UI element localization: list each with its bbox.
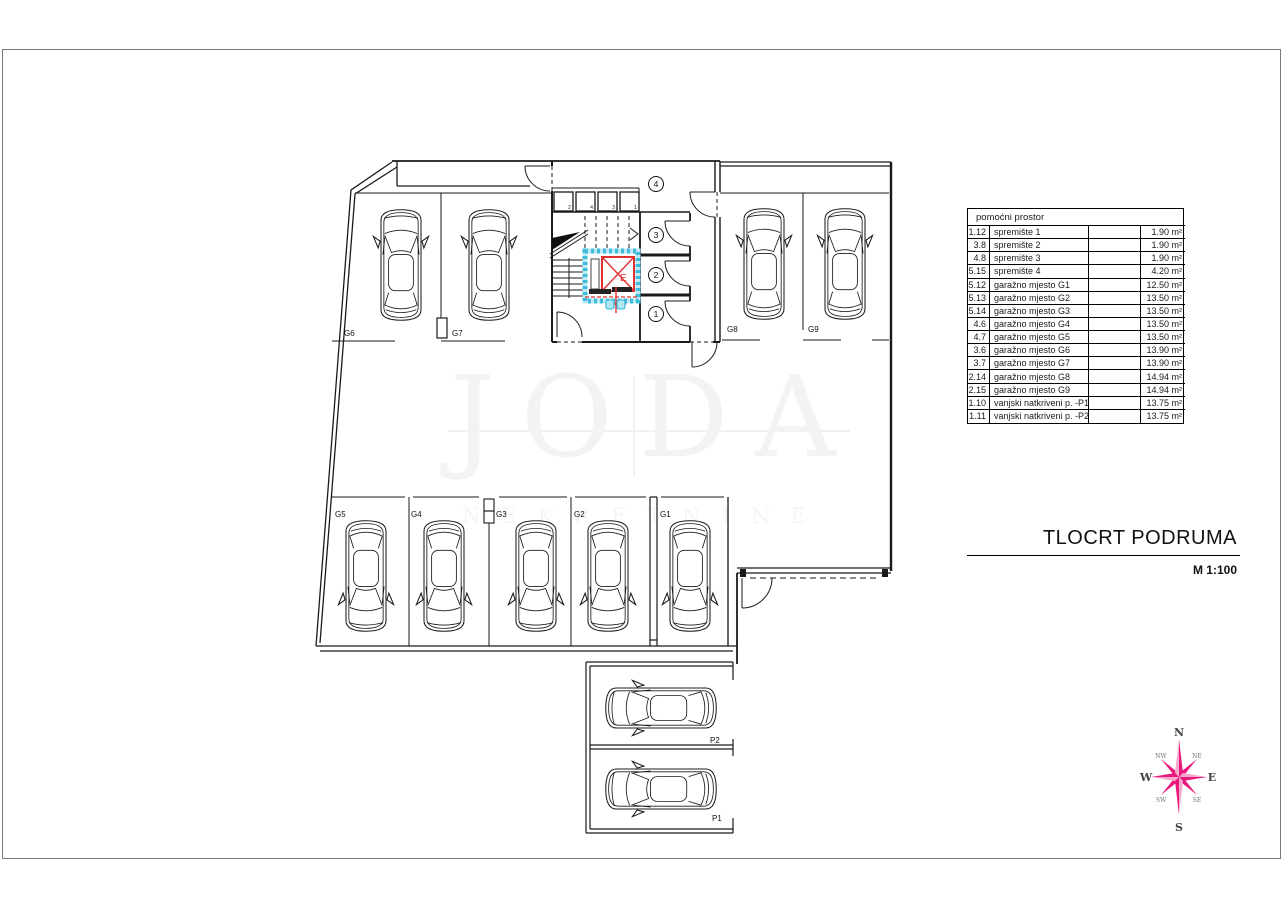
parking-labels: G6 G7 G8 G9 G5 G4 G3 G2 G1 P2 P1 xyxy=(335,325,819,823)
cell-area: 13.50 m² xyxy=(1141,305,1185,318)
room-numbers: 4 3 2 1 xyxy=(649,177,664,322)
parking-label-g6: G6 xyxy=(344,329,355,338)
cell-spacer xyxy=(1089,279,1141,292)
cell-name: garažno mjesto G9 xyxy=(990,384,1089,397)
compass-nw-label: NW xyxy=(1155,753,1167,760)
car-g8 xyxy=(736,209,791,319)
cell-area: 12.50 m² xyxy=(1141,279,1185,292)
car-g7 xyxy=(461,210,516,320)
cell-spacer xyxy=(1089,331,1141,344)
elevator-counterweight xyxy=(591,259,599,289)
car-p2 xyxy=(606,680,716,735)
room2-door xyxy=(665,261,690,286)
storage-numbers: 2 4 3 1 xyxy=(568,205,637,211)
cell-spacer xyxy=(1089,370,1141,383)
parking-label-g5: G5 xyxy=(335,510,346,519)
cell-area: 4.20 m² xyxy=(1141,265,1185,278)
cell-area: 1.90 m² xyxy=(1141,226,1185,239)
compass-w-label: W xyxy=(1139,771,1153,784)
cell-name: garažno mjesto G4 xyxy=(990,318,1089,331)
cell-name: spremište 3 xyxy=(990,252,1089,265)
cell-spacer xyxy=(1089,305,1141,318)
cell-spacer xyxy=(1089,318,1141,331)
cell-id: 3.7 xyxy=(968,357,990,370)
parking-label-g9: G9 xyxy=(808,325,819,334)
storage-boxes xyxy=(554,192,639,211)
parking-label-p1: P1 xyxy=(712,814,722,823)
room-number: 1 xyxy=(654,309,659,319)
cell-spacer xyxy=(1089,384,1141,397)
room-number: 4 xyxy=(654,179,659,189)
cell-spacer xyxy=(1089,226,1141,239)
core-left-door xyxy=(525,166,550,191)
car-g9 xyxy=(817,209,872,319)
core-bottom-left-door xyxy=(557,312,582,337)
table-header: pomoćni prostor xyxy=(968,209,1185,226)
compass-se-label: SE xyxy=(1193,797,1202,804)
cell-spacer xyxy=(1089,265,1141,278)
cell-spacer xyxy=(1089,252,1141,265)
cell-name: garažno mjesto G5 xyxy=(990,331,1089,344)
cell-name: spremište 4 xyxy=(990,265,1089,278)
section-cut-marker xyxy=(552,232,580,250)
compass-sw-label: SW xyxy=(1156,797,1167,804)
cell-area: 13.75 m² xyxy=(1141,397,1185,410)
cell-id: 5.15 xyxy=(968,265,990,278)
parking-label-g7: G7 xyxy=(452,329,463,338)
elevator-icon: E xyxy=(583,249,640,313)
compass-n-label: N xyxy=(1174,726,1184,739)
cell-spacer xyxy=(1089,292,1141,305)
cell-area: 13.90 m² xyxy=(1141,344,1185,357)
cell-area: 13.75 m² xyxy=(1141,410,1185,423)
cell-spacer xyxy=(1089,239,1141,252)
cell-area: 1.90 m² xyxy=(1141,252,1185,265)
cell-spacer xyxy=(1089,357,1141,370)
parking-label-g3: G3 xyxy=(496,510,507,519)
cell-id: 4.6 xyxy=(968,318,990,331)
cell-name: vanjski natkriveni p. -P1 xyxy=(990,397,1089,410)
entrance-door-arc xyxy=(742,578,772,608)
cell-id: 1.11 xyxy=(968,410,990,423)
car-g5 xyxy=(338,521,393,631)
cell-name: garažno mjesto G3 xyxy=(990,305,1089,318)
parking-label-g1: G1 xyxy=(660,510,671,519)
compass-e-label: E xyxy=(1208,771,1216,784)
car-g6 xyxy=(373,210,428,320)
cell-id: 2.14 xyxy=(968,370,990,383)
cell-area: 13.50 m² xyxy=(1141,318,1185,331)
cell-id: 1.12 xyxy=(968,226,990,239)
parking-label-g8: G8 xyxy=(727,325,738,334)
compass-rose-icon: N S W E NW NE SW SE xyxy=(1139,726,1216,834)
cell-id: 5.14 xyxy=(968,305,990,318)
cell-name: spremište 1 xyxy=(990,226,1089,239)
storage-number: 3 xyxy=(612,205,615,211)
cell-spacer xyxy=(1089,410,1141,423)
cell-name: garažno mjesto G2 xyxy=(990,292,1089,305)
cell-area: 14.94 m² xyxy=(1141,370,1185,383)
room1-door xyxy=(665,301,690,326)
corridor-top-door xyxy=(690,192,715,217)
car-g2 xyxy=(580,521,635,631)
cell-area: 13.90 m² xyxy=(1141,357,1185,370)
car-g4 xyxy=(416,521,471,631)
cell-id: 3.6 xyxy=(968,344,990,357)
parking-label-p2: P2 xyxy=(710,736,720,745)
cell-area: 1.90 m² xyxy=(1141,239,1185,252)
core-bottom-right-door xyxy=(692,342,717,367)
storage-number: 2 xyxy=(568,205,571,211)
elevator-label: E xyxy=(620,273,627,284)
cell-id: 5.12 xyxy=(968,279,990,292)
room-number: 3 xyxy=(654,230,659,240)
cell-name: garažno mjesto G7 xyxy=(990,357,1089,370)
cell-name: spremište 2 xyxy=(990,239,1089,252)
cell-name: garažno mjesto G1 xyxy=(990,279,1089,292)
cell-spacer xyxy=(1089,344,1141,357)
floor-plan-svg: 2 4 3 1 xyxy=(0,0,1287,905)
cell-name: garažno mjesto G6 xyxy=(990,344,1089,357)
scale-label: M 1:100 xyxy=(1193,563,1237,577)
cell-area: 13.50 m² xyxy=(1141,331,1185,344)
room-schedule-table: pomoćni prostor 1.12 spremište 1 1.90 m²… xyxy=(967,208,1184,424)
storage-number: 1 xyxy=(634,205,637,211)
car-g1 xyxy=(662,521,717,631)
car-p1 xyxy=(606,761,716,816)
cell-id: 1.10 xyxy=(968,397,990,410)
entrance-opening xyxy=(740,569,888,608)
parking-label-g4: G4 xyxy=(411,510,422,519)
cell-id: 5.13 xyxy=(968,292,990,305)
room3-door xyxy=(665,221,690,246)
compass-s-label: S xyxy=(1175,821,1183,834)
cell-id: 4.8 xyxy=(968,252,990,265)
title-underline xyxy=(967,555,1240,556)
cell-name: garažno mjesto G8 xyxy=(990,370,1089,383)
cell-area: 14.94 m² xyxy=(1141,384,1185,397)
cell-name: vanjski natkriveni p. -P2 xyxy=(990,410,1089,423)
room-number: 2 xyxy=(654,270,659,280)
page-title: TLOCRT PODRUMA xyxy=(1043,527,1237,550)
cell-id: 4.7 xyxy=(968,331,990,344)
compass-ne-label: NE xyxy=(1192,753,1202,760)
cell-id: 3.8 xyxy=(968,239,990,252)
storage-number: 4 xyxy=(590,205,593,211)
parking-label-g2: G2 xyxy=(574,510,585,519)
car-g3 xyxy=(508,521,563,631)
cell-area: 13.50 m² xyxy=(1141,292,1185,305)
drawing-sheet: JODA NEKRETNINE xyxy=(0,0,1287,905)
cell-id: 2.15 xyxy=(968,384,990,397)
cell-spacer xyxy=(1089,397,1141,410)
